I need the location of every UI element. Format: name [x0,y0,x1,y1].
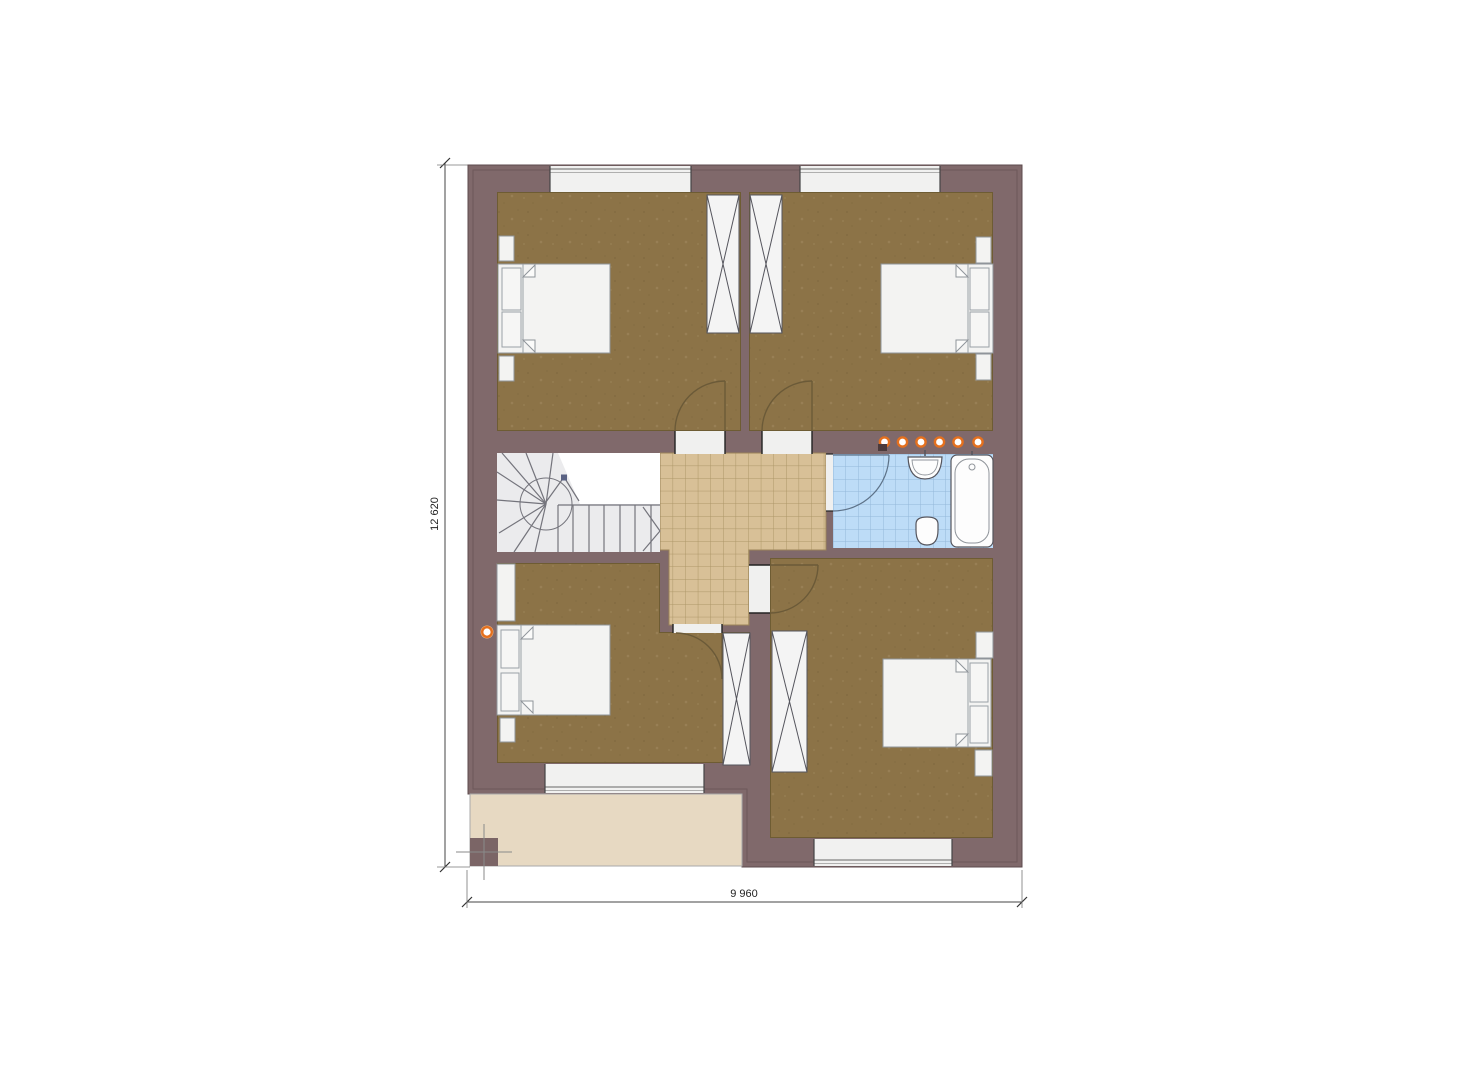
svg-text:9 960: 9 960 [730,888,758,900]
svg-text:12 620: 12 620 [429,497,441,531]
